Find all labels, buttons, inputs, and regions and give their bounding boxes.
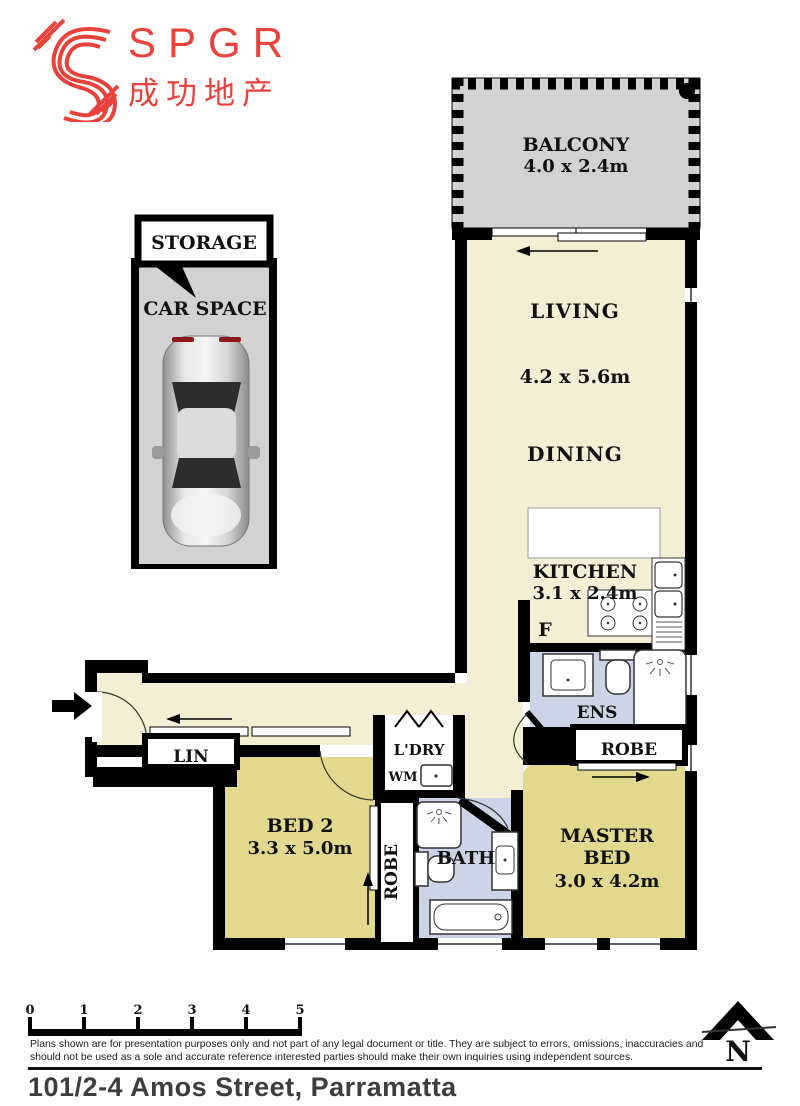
toilet-cistern-icon: [415, 852, 428, 886]
car-space: CAR SPACE STORAGE: [131, 218, 277, 569]
bed2-label: BED 2: [267, 815, 334, 837]
property-address: 101/2-4 Amos Street, Parramatta: [28, 1072, 457, 1103]
wm-label: WM: [388, 770, 418, 785]
sink-icon: [652, 558, 685, 650]
fridge-label: F: [538, 619, 552, 641]
ens-toilet-cistern-icon: [600, 650, 636, 660]
master-robe-label: ROBE: [601, 740, 657, 760]
bed2-dims: 3.3 x 5.0m: [248, 838, 353, 859]
kitchen-dims: 3.1 x 2.4m: [533, 583, 638, 604]
room-balcony: BALCONY 4.0 x 2.4m: [452, 78, 700, 228]
balcony-corner-post: [679, 83, 695, 99]
master-dims: 3.0 x 4.2m: [555, 871, 660, 892]
balcony-dims: 4.0 x 2.4m: [524, 156, 629, 177]
kitchen-label: KITCHEN: [533, 561, 637, 583]
scale-tick-4: 4: [241, 1003, 250, 1018]
scale-bar: 0 1 2 3 4 5: [0, 1000, 340, 1042]
scale-tick-2: 2: [133, 1003, 142, 1018]
car-space-label: CAR SPACE: [143, 298, 266, 320]
bed2-robe-label: ROBE: [382, 844, 402, 900]
disclaimer-line-1: Plans shown are for presentation purpose…: [30, 1038, 750, 1051]
scale-tick-1: 1: [79, 1003, 88, 1018]
ens-toilet-bowl-icon: [606, 660, 630, 694]
laundry-label: L'DRY: [394, 741, 445, 759]
living-label: LIVING: [530, 299, 620, 323]
scale-tick-0: 0: [25, 1003, 34, 1018]
scale-bar-ruler: [28, 1017, 302, 1036]
laundry: L'DRY WM: [385, 711, 453, 790]
master-label-2: BED: [583, 847, 630, 869]
floorplan-page: SPGR 成功地产 BALCONY 4.0 x 2.4m: [0, 0, 800, 1106]
bath-label: BATH: [437, 848, 496, 869]
disclaimer-line-2: should not be used as a sole and accurat…: [30, 1051, 750, 1064]
shower-icon: [417, 802, 461, 848]
living-dims: 4.2 x 5.6m: [520, 366, 631, 388]
disclaimer: Plans shown are for presentation purpose…: [30, 1038, 750, 1065]
footer-divider: [28, 1067, 762, 1070]
kitchen-bench: [528, 508, 660, 558]
master-label-1: MASTER: [560, 825, 654, 847]
entry-arrow-icon: [52, 692, 92, 720]
lin-label: LIN: [173, 747, 208, 767]
ens-label: ENS: [577, 703, 618, 723]
scale-tick-5: 5: [295, 1003, 304, 1018]
balcony-label: BALCONY: [523, 134, 630, 156]
floorplan-drawing: BALCONY 4.0 x 2.4m: [0, 0, 800, 1000]
scale-tick-3: 3: [187, 1003, 196, 1018]
dining-label: DINING: [527, 442, 623, 466]
storage-label: STORAGE: [151, 232, 257, 254]
car-icon: [152, 336, 260, 546]
